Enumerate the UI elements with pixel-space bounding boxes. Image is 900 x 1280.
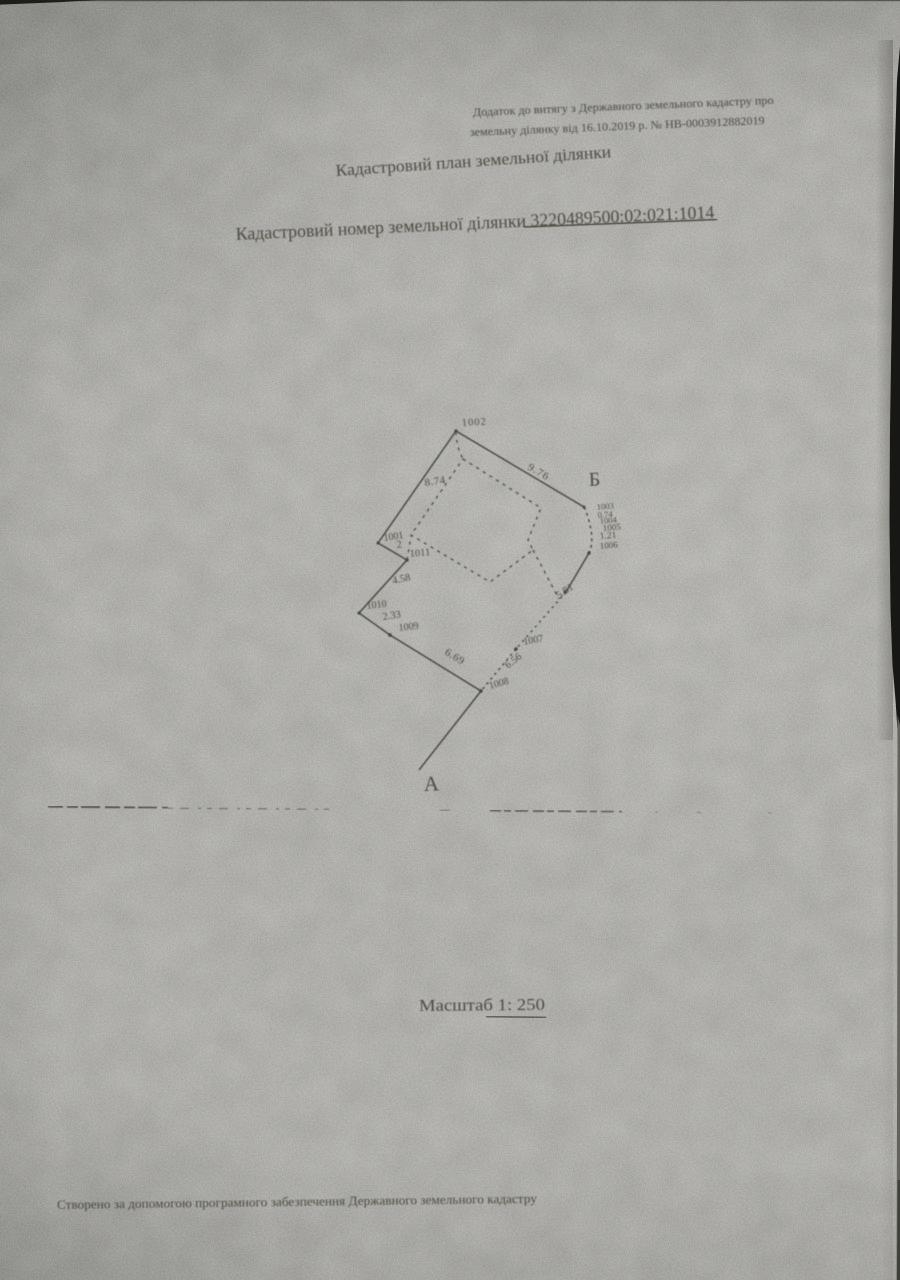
svg-text:1011: 1011 [409, 547, 431, 560]
svg-text:Б: Б [588, 469, 600, 491]
svg-text:А: А [423, 771, 440, 796]
svg-text:Масштаб 1: 250: Масштаб 1: 250 [419, 995, 545, 1015]
svg-text:1010: 1010 [366, 599, 387, 612]
svg-text:1002: 1002 [462, 417, 488, 429]
svg-text:1009: 1009 [398, 621, 419, 634]
svg-text:1006: 1006 [599, 539, 618, 551]
